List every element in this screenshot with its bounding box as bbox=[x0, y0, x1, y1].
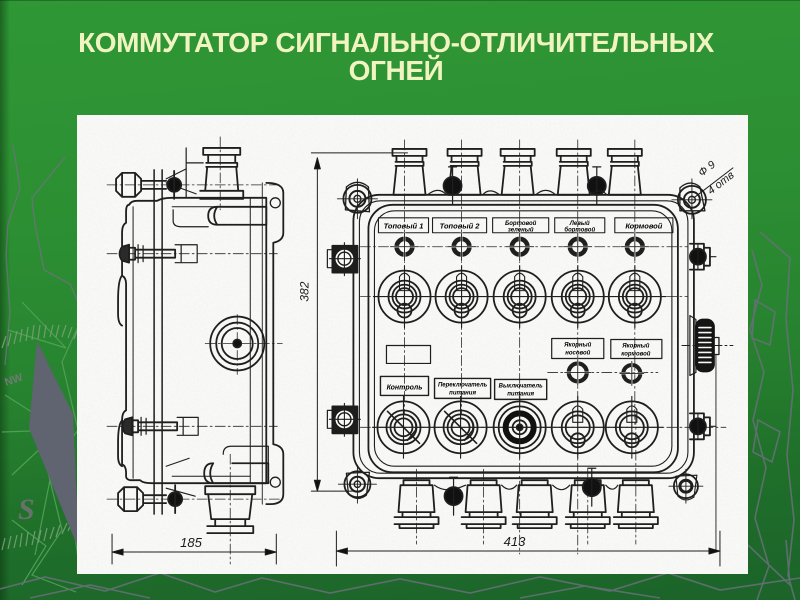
svg-text:Левый: Левый bbox=[569, 220, 590, 227]
svg-text:кормовой: кормовой bbox=[621, 350, 651, 357]
svg-text:Топовый 2: Топовый 2 bbox=[440, 222, 481, 231]
svg-text:Кормовой: Кормовой bbox=[625, 222, 662, 231]
svg-text:носовой: носовой bbox=[565, 349, 590, 356]
svg-text:Якорный: Якорный bbox=[563, 342, 591, 349]
svg-text:питания: питания bbox=[449, 390, 476, 396]
svg-text:413: 413 bbox=[504, 534, 526, 549]
svg-text:185: 185 bbox=[180, 535, 202, 550]
svg-text:Переключатель: Переключатель bbox=[438, 382, 488, 388]
svg-text:Выключатель: Выключатель bbox=[499, 383, 543, 389]
svg-text:бортовой: бортовой bbox=[564, 227, 595, 234]
svg-text:S: S bbox=[18, 493, 35, 526]
svg-text:382: 382 bbox=[297, 281, 311, 301]
svg-text:питания: питания bbox=[507, 391, 534, 397]
svg-text:зеленый: зеленый bbox=[508, 227, 534, 234]
svg-text:Топовый 1: Топовый 1 bbox=[384, 222, 424, 231]
svg-text:NW: NW bbox=[3, 372, 25, 389]
svg-text:Якорный: Якорный bbox=[621, 343, 649, 350]
svg-text:Контроль: Контроль bbox=[387, 384, 423, 391]
svg-text:Бортовой: Бортовой bbox=[505, 220, 537, 227]
